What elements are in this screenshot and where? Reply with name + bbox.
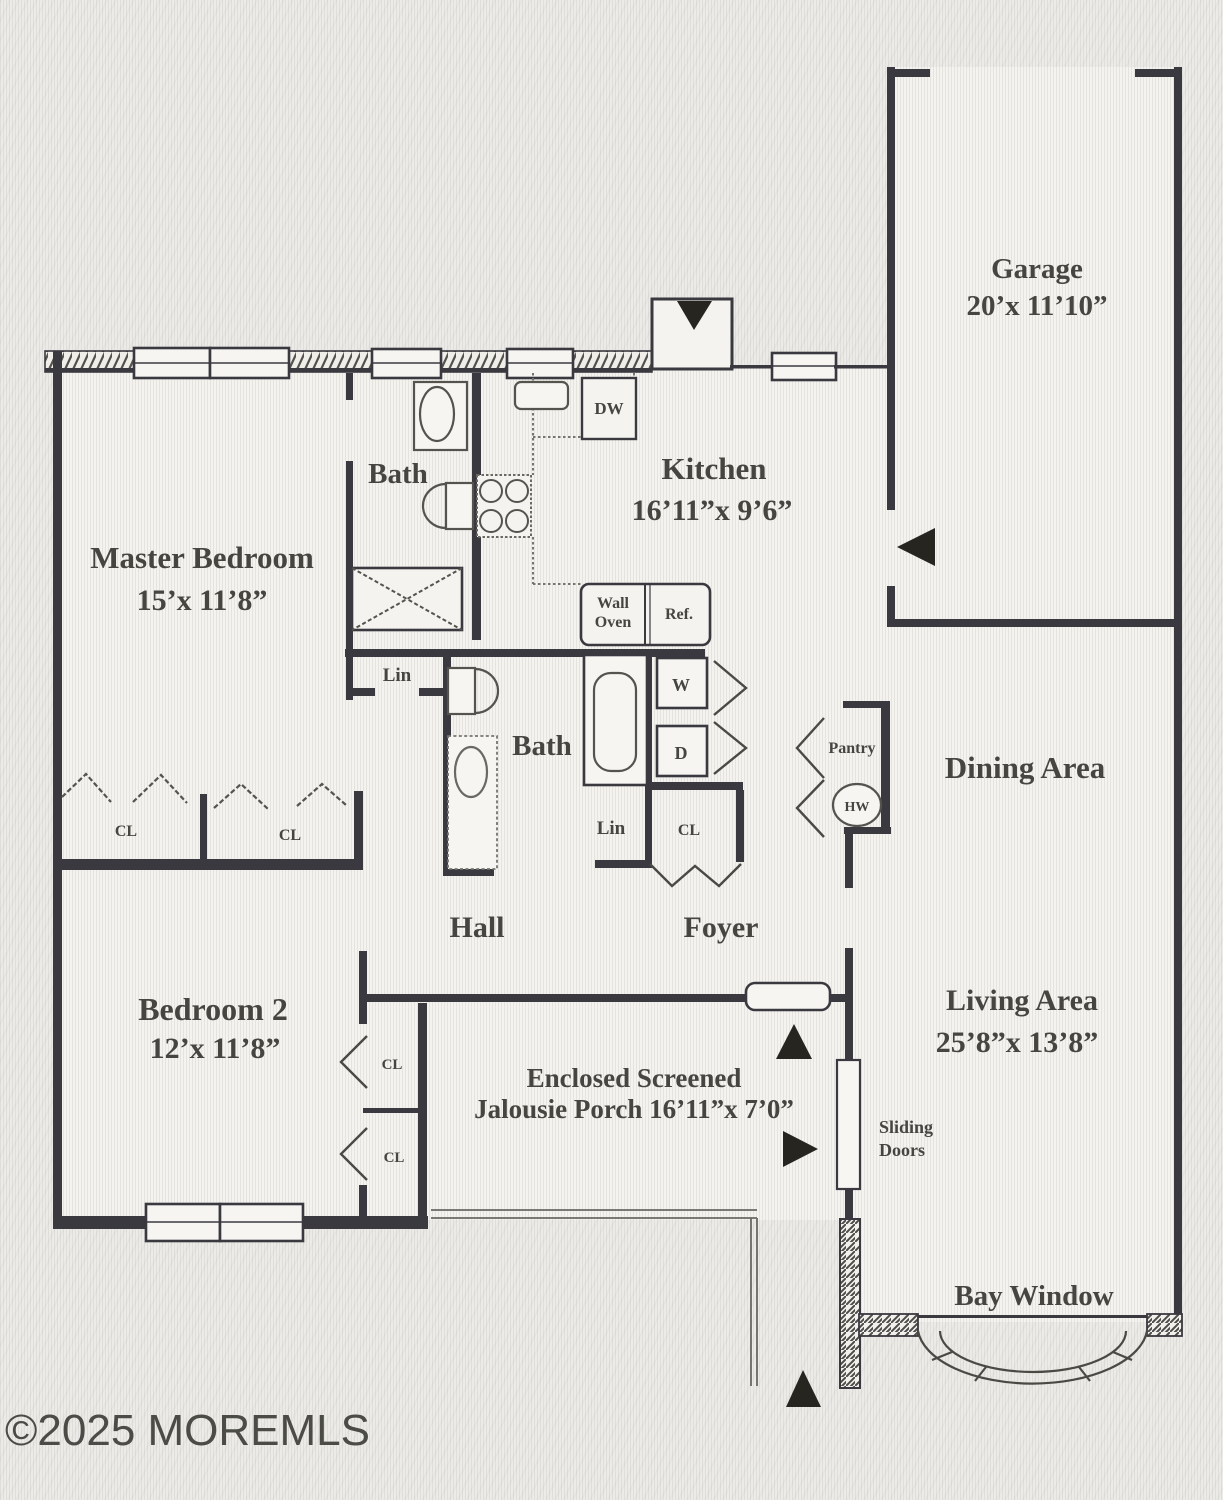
svg-text:12’x 11’8”: 12’x 11’8”	[150, 1032, 281, 1065]
svg-text:Lin: Lin	[383, 665, 412, 686]
svg-text:HW: HW	[845, 800, 870, 815]
svg-text:Master Bedroom: Master Bedroom	[90, 540, 314, 575]
svg-text:Pantry: Pantry	[828, 740, 875, 757]
svg-text:©2025 MOREMLS: ©2025 MOREMLS	[5, 1406, 370, 1455]
svg-text:CL: CL	[279, 827, 301, 844]
svg-text:Sliding: Sliding	[879, 1117, 933, 1137]
svg-text:CL: CL	[115, 823, 137, 840]
svg-text:Foyer: Foyer	[684, 911, 759, 944]
svg-text:Bath: Bath	[368, 458, 428, 490]
svg-text:DW: DW	[594, 399, 623, 418]
svg-text:Hall: Hall	[449, 911, 504, 944]
svg-text:Bay Window: Bay Window	[954, 1280, 1113, 1312]
svg-text:Kitchen: Kitchen	[661, 451, 766, 486]
svg-text:16’11”x 9’6”: 16’11”x 9’6”	[632, 494, 793, 527]
svg-text:W: W	[672, 675, 690, 695]
svg-text:Enclosed Screened: Enclosed Screened	[527, 1063, 742, 1093]
svg-text:CL: CL	[384, 1150, 405, 1166]
svg-text:D: D	[675, 743, 688, 763]
svg-text:Doors: Doors	[879, 1140, 925, 1160]
svg-text:Living Area: Living Area	[946, 984, 1098, 1017]
svg-text:CL: CL	[382, 1057, 403, 1073]
svg-text:Dining Area: Dining Area	[945, 750, 1106, 785]
svg-text:Bath: Bath	[512, 730, 572, 762]
svg-text:20’x 11’10”: 20’x 11’10”	[967, 290, 1108, 322]
svg-text:Bedroom 2: Bedroom 2	[138, 991, 288, 1027]
svg-text:25’8”x 13’8”: 25’8”x 13’8”	[936, 1026, 1098, 1059]
svg-text:Jalousie Porch 16’11”x 7’0”: Jalousie Porch 16’11”x 7’0”	[474, 1094, 794, 1124]
svg-text:CL: CL	[678, 822, 700, 839]
svg-text:Garage: Garage	[991, 253, 1083, 285]
svg-text:15’x 11’8”: 15’x 11’8”	[137, 584, 268, 617]
svg-text:Wall: Wall	[597, 595, 630, 612]
svg-text:Ref.: Ref.	[665, 606, 693, 623]
svg-text:Lin: Lin	[597, 818, 626, 839]
svg-text:Oven: Oven	[595, 614, 632, 631]
